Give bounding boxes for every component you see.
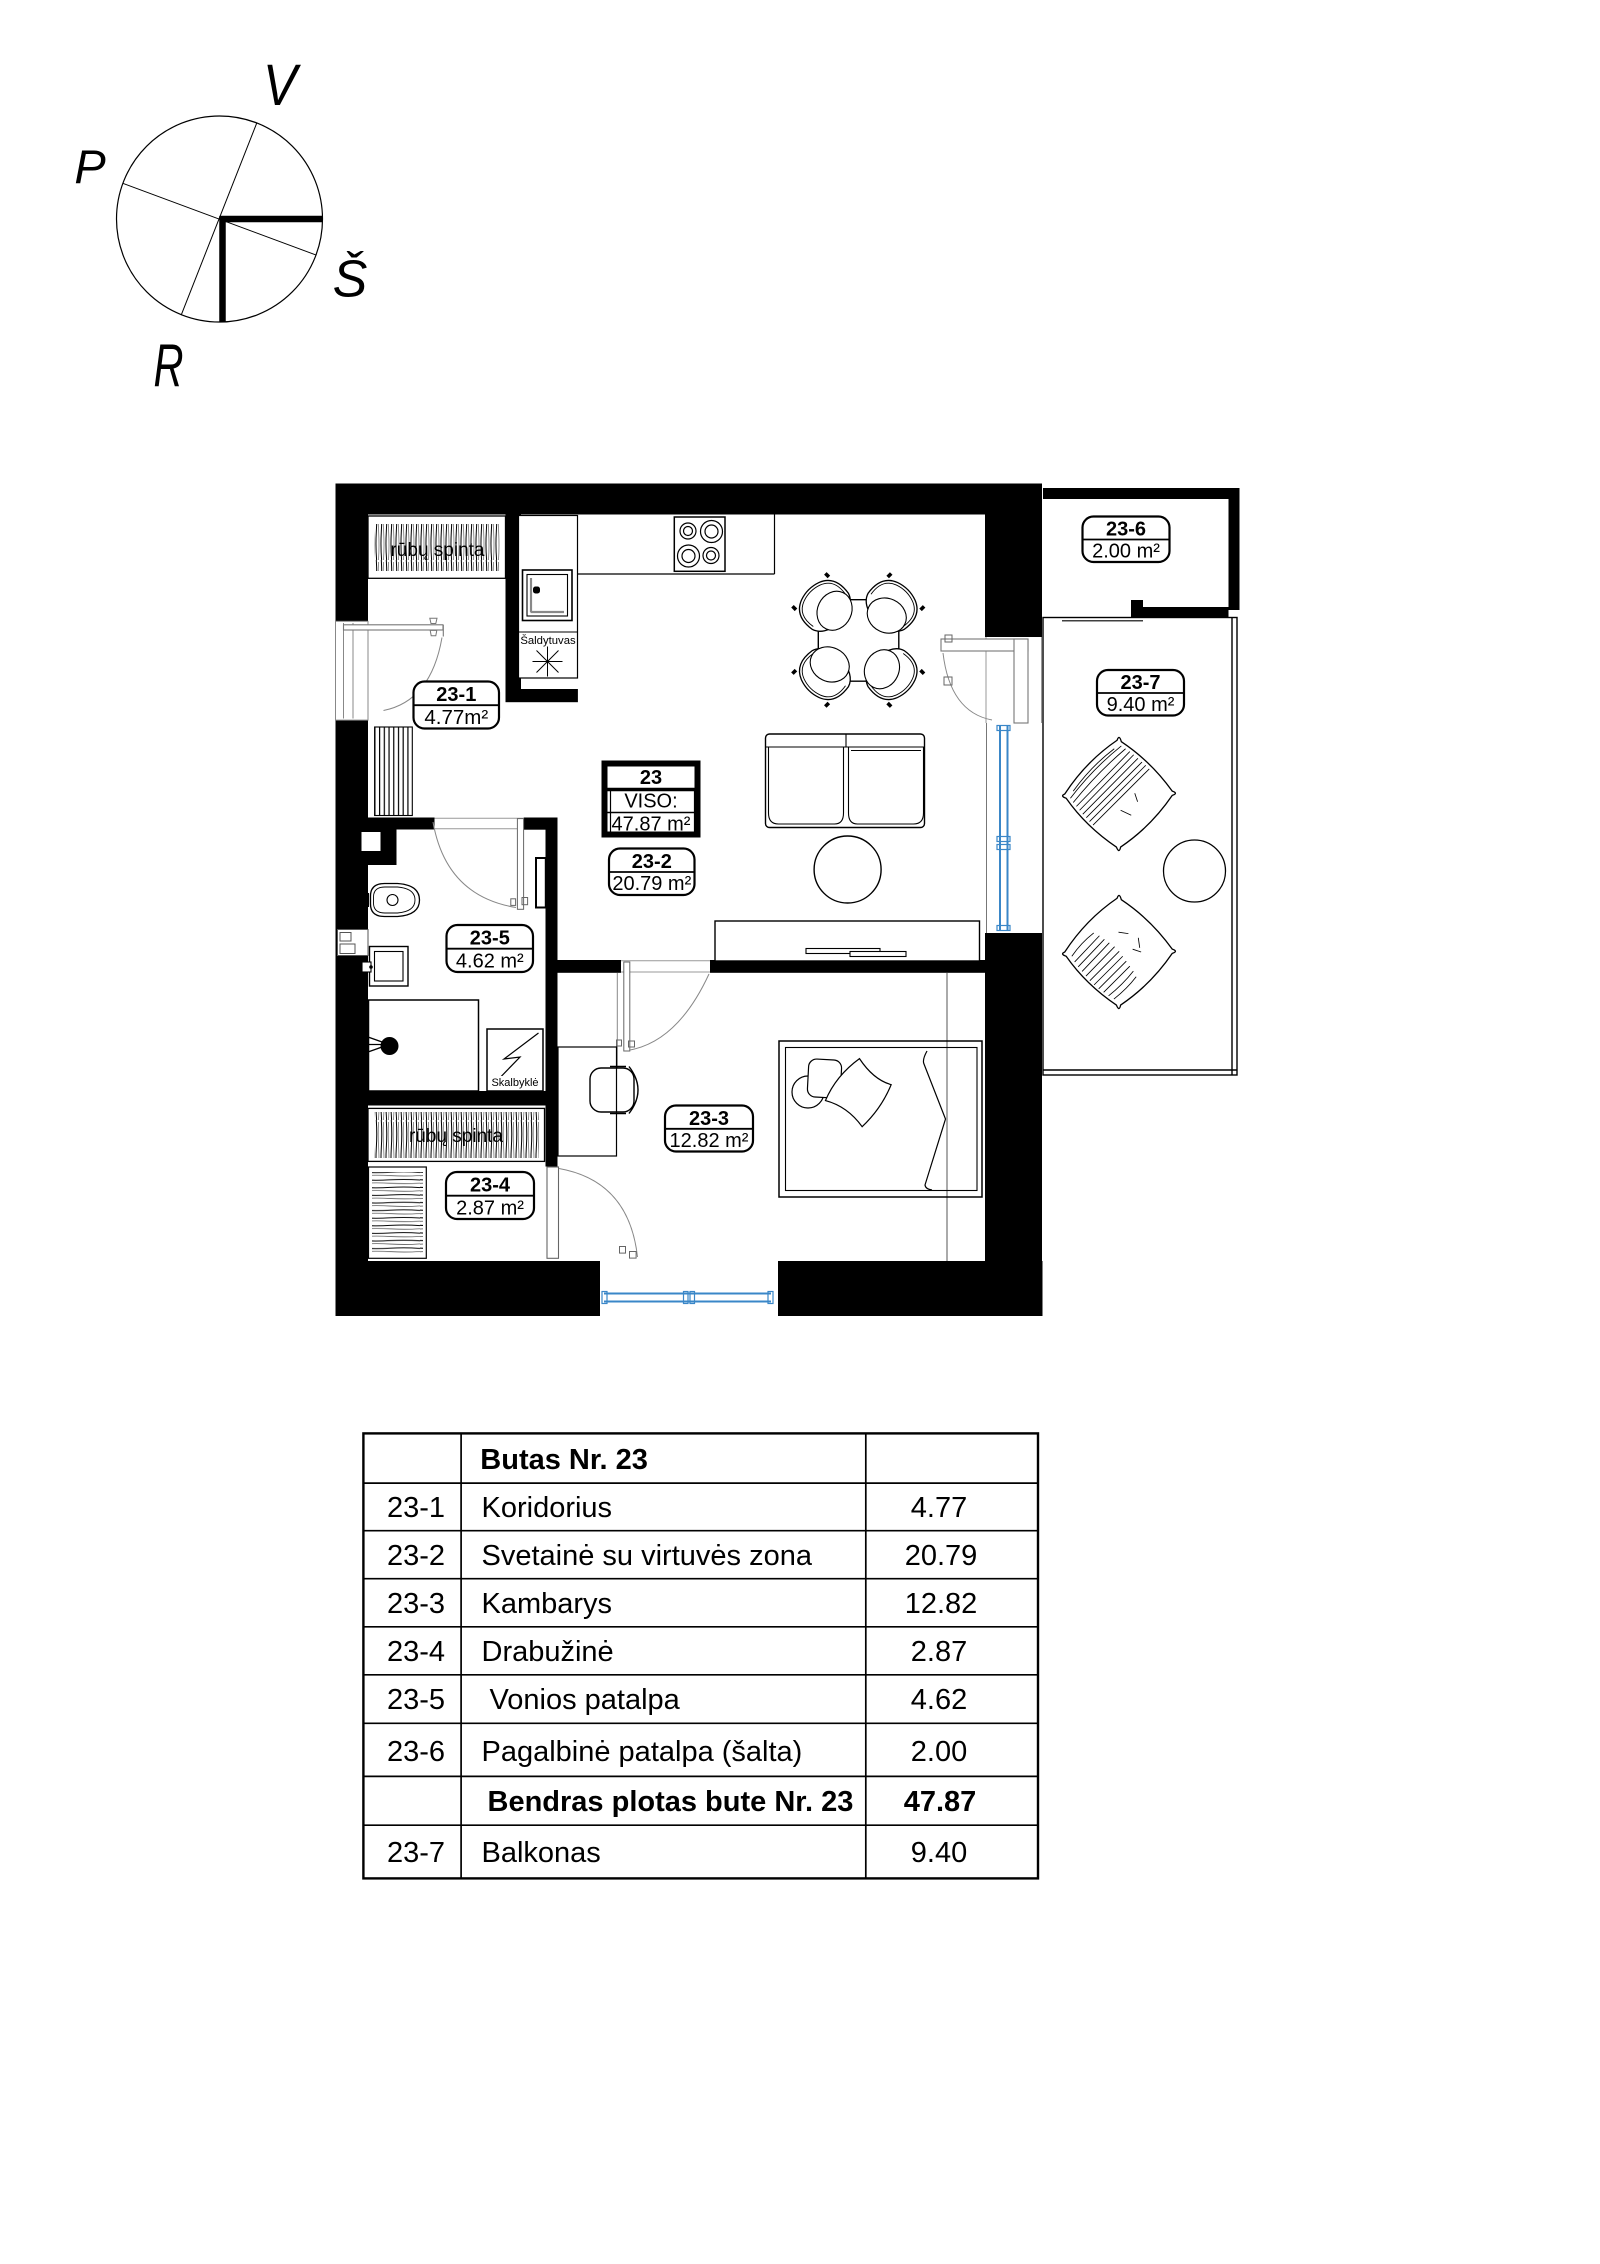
- svg-text:9.40: 9.40: [911, 1837, 967, 1869]
- svg-text:Svetainė su virtuvės zona: Svetainė su virtuvės zona: [482, 1540, 813, 1572]
- svg-text:20.79 m²: 20.79 m²: [612, 873, 691, 895]
- svg-text:Skalbyklė: Skalbyklė: [491, 1077, 538, 1089]
- svg-text:23-5: 23-5: [387, 1684, 445, 1716]
- svg-text:P: P: [74, 140, 106, 193]
- svg-text:23-3: 23-3: [387, 1588, 445, 1620]
- svg-text:rūbų spinta: rūbų spinta: [409, 1126, 503, 1147]
- svg-text:23-2: 23-2: [387, 1540, 445, 1572]
- svg-text:23-7: 23-7: [387, 1837, 445, 1869]
- svg-text:Butas Nr. 23: Butas Nr. 23: [480, 1444, 648, 1476]
- svg-text:R: R: [154, 333, 184, 400]
- svg-text:Šaldytuvas: Šaldytuvas: [520, 634, 576, 647]
- svg-text:47.87: 47.87: [904, 1786, 977, 1818]
- svg-text:9.40 m²: 9.40 m²: [1107, 694, 1175, 716]
- svg-text:Kambarys: Kambarys: [482, 1588, 613, 1620]
- svg-text:4.77m²: 4.77m²: [424, 706, 488, 729]
- svg-text:Pagalbinė patalpa (šalta): Pagalbinė patalpa (šalta): [482, 1736, 803, 1768]
- svg-text:Drabužinė: Drabužinė: [482, 1636, 614, 1668]
- svg-text:4.77: 4.77: [911, 1492, 967, 1524]
- svg-text:23-6: 23-6: [387, 1736, 445, 1768]
- svg-text:23-1: 23-1: [436, 684, 476, 706]
- svg-text:Bendras plotas bute Nr. 23: Bendras plotas bute Nr. 23: [488, 1786, 854, 1818]
- svg-text:VISO:: VISO:: [624, 791, 677, 813]
- svg-text:47.87 m²: 47.87 m²: [612, 814, 691, 836]
- svg-text:23-4: 23-4: [470, 1175, 511, 1197]
- svg-text:12.82: 12.82: [905, 1588, 978, 1620]
- svg-text:2.87 m²: 2.87 m²: [456, 1198, 524, 1220]
- svg-text:4.62 m²: 4.62 m²: [456, 951, 524, 973]
- svg-text:23-4: 23-4: [387, 1636, 445, 1668]
- svg-text:23-3: 23-3: [689, 1108, 729, 1130]
- svg-text:2.00: 2.00: [911, 1736, 967, 1768]
- svg-text:Š: Š: [333, 251, 368, 309]
- svg-text:V: V: [263, 53, 302, 118]
- svg-text:2.00 m²: 2.00 m²: [1092, 541, 1160, 563]
- svg-text:20.79: 20.79: [905, 1540, 978, 1572]
- svg-text:23-5: 23-5: [470, 928, 510, 950]
- svg-text:Koridorius: Koridorius: [482, 1492, 613, 1524]
- svg-text:rūbų spinta: rūbų spinta: [390, 540, 484, 561]
- svg-text:12.82 m²: 12.82 m²: [670, 1130, 749, 1152]
- svg-text:23-2: 23-2: [632, 851, 672, 873]
- svg-text:23: 23: [640, 767, 662, 789]
- svg-text:23-1: 23-1: [387, 1492, 445, 1524]
- svg-text:Vonios patalpa: Vonios patalpa: [490, 1684, 681, 1716]
- svg-text:4.62: 4.62: [911, 1684, 967, 1716]
- svg-text:2.87: 2.87: [911, 1636, 967, 1668]
- svg-text:Balkonas: Balkonas: [482, 1837, 601, 1869]
- svg-text:23-6: 23-6: [1106, 519, 1146, 541]
- svg-text:23-7: 23-7: [1120, 672, 1160, 694]
